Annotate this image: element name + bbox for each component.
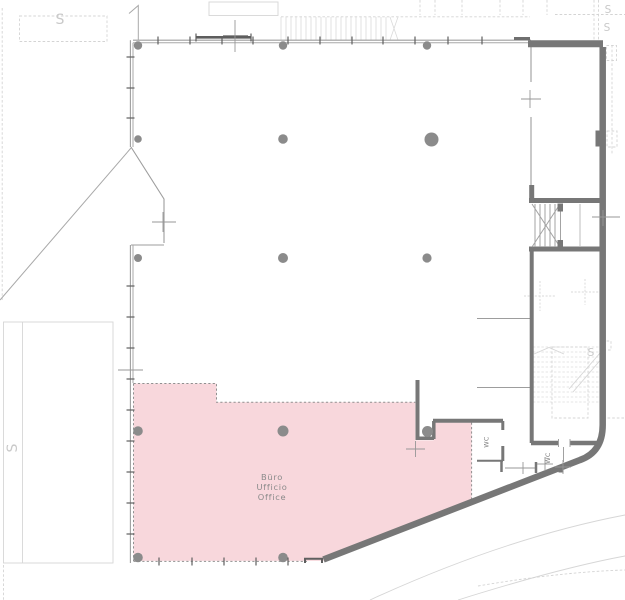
wc2-label: WC — [544, 452, 552, 464]
office-label-de: Büro — [261, 472, 283, 482]
office-label-en: Office — [258, 492, 287, 502]
section-marker-left-icon: S — [5, 443, 21, 452]
site-box-top — [209, 2, 278, 16]
section-marker-top-left-icon: S — [56, 12, 65, 28]
floor-plan-canvas: Büro Ufficio Office WC WC S S S S S — [0, 0, 625, 600]
wc1-label: WC — [483, 436, 491, 448]
side-building-outline — [4, 322, 114, 563]
floor-plan-svg: Büro Ufficio Office WC WC S S S S S — [0, 0, 625, 600]
site-curve-2 — [458, 556, 625, 600]
section-marker-top-right-1-icon: S — [605, 4, 612, 16]
hatch-band — [281, 17, 398, 40]
section-marker-top-right-2-icon: S — [604, 22, 611, 34]
dashed-fixture-crosses — [524, 279, 599, 311]
stair-upper-right — [532, 204, 580, 249]
office-highlight-polygon — [134, 384, 472, 561]
door-jamb-right-wall — [596, 131, 604, 147]
stair-dashed — [533, 341, 611, 418]
section-marker-stair-icon: S — [588, 347, 595, 359]
office-label-it: Ufficio — [256, 482, 287, 492]
office-area — [134, 384, 472, 562]
